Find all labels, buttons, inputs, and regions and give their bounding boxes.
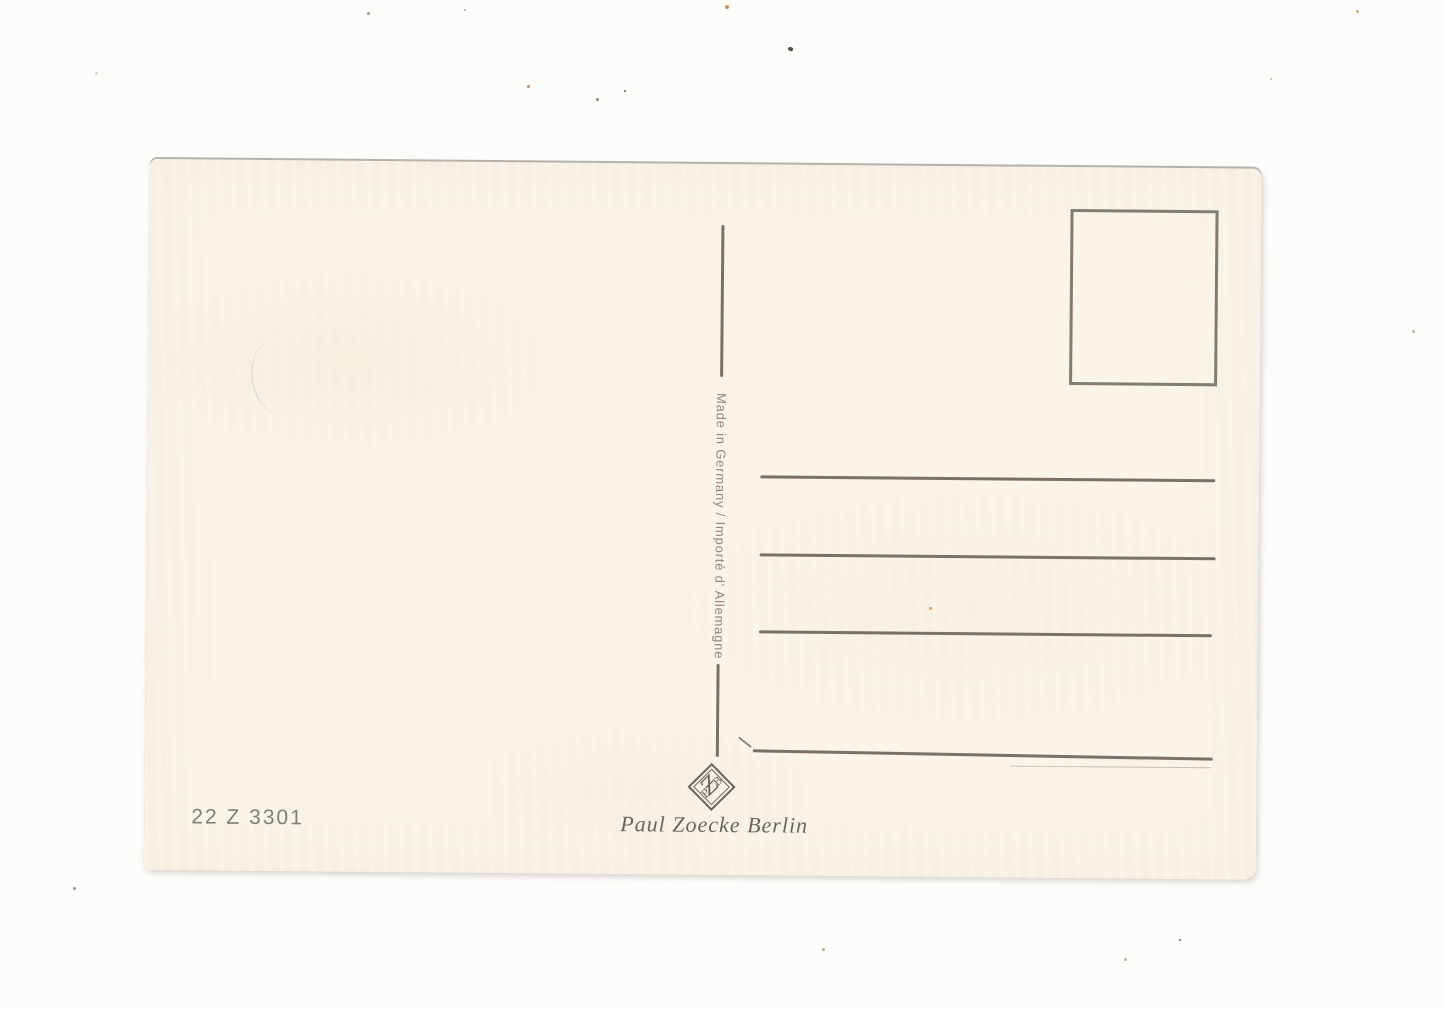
dust-speck — [725, 5, 729, 9]
stamp-box — [1069, 209, 1219, 386]
address-line-2 — [760, 553, 1216, 560]
dust-speck — [73, 887, 76, 890]
dust-speck — [367, 12, 370, 15]
address-line-1 — [760, 475, 1215, 482]
divider-text: Made in Germany / Importé d' Allemagne — [702, 382, 739, 670]
order-number: 22 Z 3301 — [191, 805, 304, 830]
dust-speck — [822, 948, 825, 951]
paper-speck — [929, 607, 932, 610]
divider-line-bottom — [716, 664, 720, 757]
scan-background: { "postcard": { "divider_text": "Made in… — [0, 0, 1445, 1009]
divider-line-top — [720, 225, 724, 377]
publisher-name: Paul Zoecke Berlin — [564, 811, 864, 840]
dust-speck — [1356, 10, 1359, 13]
scratch-mark — [738, 736, 752, 748]
logo-letter-z: Ƶ — [696, 771, 724, 800]
faint-impression-line — [1011, 766, 1211, 769]
dust-speck — [787, 46, 793, 52]
dust-speck — [596, 98, 599, 101]
dust-speck — [1124, 958, 1127, 961]
postcard: Made in Germany / Importé d' Allemagne P… — [144, 159, 1262, 880]
dust-speck — [1179, 939, 1181, 941]
dust-speck — [464, 9, 466, 11]
dust-speck — [624, 90, 626, 92]
address-line-3 — [759, 630, 1212, 637]
dust-speck — [1270, 78, 1272, 80]
address-line-4 — [753, 749, 1213, 760]
crease-mark — [245, 339, 301, 420]
dust-speck — [95, 72, 98, 75]
publisher-logo-letters: P Ƶ B — [688, 763, 736, 811]
dust-speck — [1412, 330, 1415, 333]
dust-speck — [527, 85, 530, 88]
